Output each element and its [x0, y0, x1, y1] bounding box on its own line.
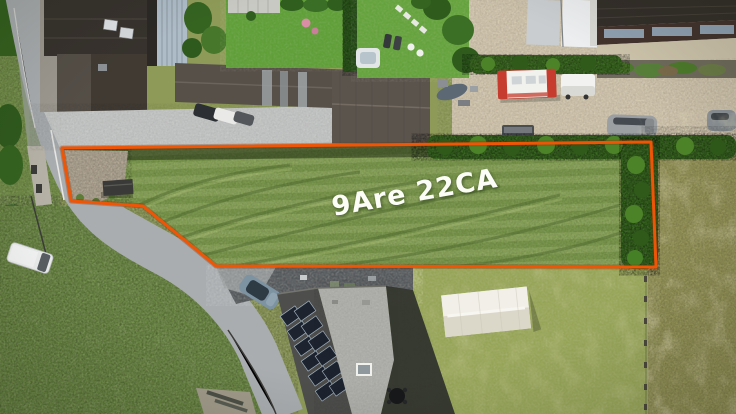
roof-skylight — [357, 364, 371, 375]
flower-bush — [302, 19, 311, 28]
dark-roof-a — [44, 0, 152, 56]
skylight — [103, 19, 117, 31]
small-shed — [101, 179, 134, 198]
gray-suv — [607, 114, 658, 138]
garden-chair — [407, 43, 414, 50]
gray-car-edge — [707, 110, 736, 131]
aerial-plot-photo: 9Are 22CA — [0, 0, 736, 414]
patio-table — [389, 388, 405, 404]
window-band — [604, 29, 644, 38]
food-truck — [497, 69, 560, 103]
white-trailer — [561, 74, 595, 100]
neighbour-gardens — [226, 0, 480, 78]
hedge-row-boundary — [427, 135, 736, 159]
dry-field — [646, 140, 736, 414]
